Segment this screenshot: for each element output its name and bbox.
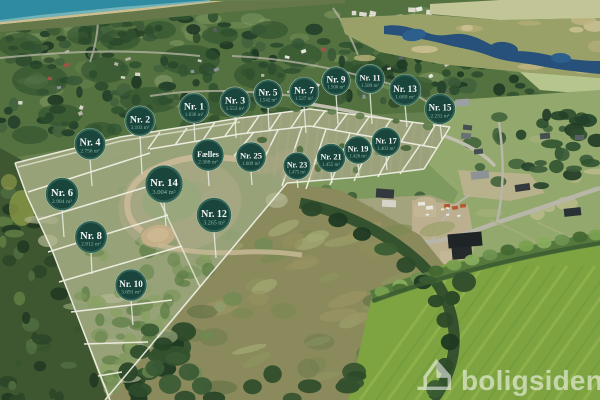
svg-text:Nr. 4: Nr. 4 [80,138,101,149]
svg-text:1.475 m²: 1.475 m² [289,169,306,175]
svg-text:1.542 m²: 1.542 m² [259,98,277,104]
svg-text:3.004 m²: 3.004 m² [152,189,175,196]
svg-text:1.426 m²: 1.426 m² [349,154,367,160]
svg-text:2.756 m²: 2.756 m² [80,148,100,154]
svg-text:3.103 m²: 3.103 m² [131,125,150,131]
svg-text:Nr. 13: Nr. 13 [393,84,417,94]
svg-text:1.506 m²: 1.506 m² [327,85,345,91]
svg-text:Nr. 8: Nr. 8 [80,231,102,242]
svg-text:Nr. 25: Nr. 25 [240,151,262,161]
svg-text:Nr. 2: Nr. 2 [130,115,150,126]
svg-text:Nr. 17: Nr. 17 [375,137,397,146]
svg-text:Nr. 19: Nr. 19 [348,145,369,154]
svg-text:Fælles: Fælles [197,150,219,159]
svg-text:Nr. 5: Nr. 5 [258,88,277,98]
svg-text:3.265 m²: 3.265 m² [203,220,225,226]
svg-text:Nr. 6: Nr. 6 [51,187,74,199]
svg-text:3.691 m²: 3.691 m² [121,290,141,296]
svg-text:1.609 m²: 1.609 m² [242,161,261,167]
svg-text:2.231 m²: 2.231 m² [431,113,450,119]
svg-text:1.527 m²: 1.527 m² [295,96,314,102]
svg-text:Nr. 14: Nr. 14 [150,177,178,189]
svg-text:Nr. 3: Nr. 3 [225,96,245,107]
svg-text:1.680 m²: 1.680 m² [395,95,415,101]
svg-text:Nr. 15: Nr. 15 [429,103,452,113]
svg-text:Nr. 12: Nr. 12 [201,209,227,220]
svg-text:Nr. 11: Nr. 11 [359,74,380,83]
svg-text:Nr. 9: Nr. 9 [326,75,345,85]
svg-text:2.904 m²: 2.904 m² [52,199,73,205]
svg-text:Nr. 1: Nr. 1 [184,102,204,113]
svg-text:Nr. 10: Nr. 10 [119,279,143,289]
svg-text:boligsiden: boligsiden [461,365,600,396]
svg-text:Nr. 23: Nr. 23 [287,161,307,170]
svg-text:2.812 m²: 2.812 m² [81,242,101,248]
svg-text:1.636 m²: 1.636 m² [185,112,204,118]
svg-text:1.589 m²: 1.589 m² [361,83,379,89]
svg-text:1.403 m²: 1.403 m² [377,146,395,152]
svg-text:Nr. 21: Nr. 21 [320,153,341,162]
svg-text:1.553 m²: 1.553 m² [226,106,245,112]
svg-text:1.455 m²: 1.455 m² [322,162,340,168]
svg-text:2.368 m²: 2.368 m² [198,160,218,166]
